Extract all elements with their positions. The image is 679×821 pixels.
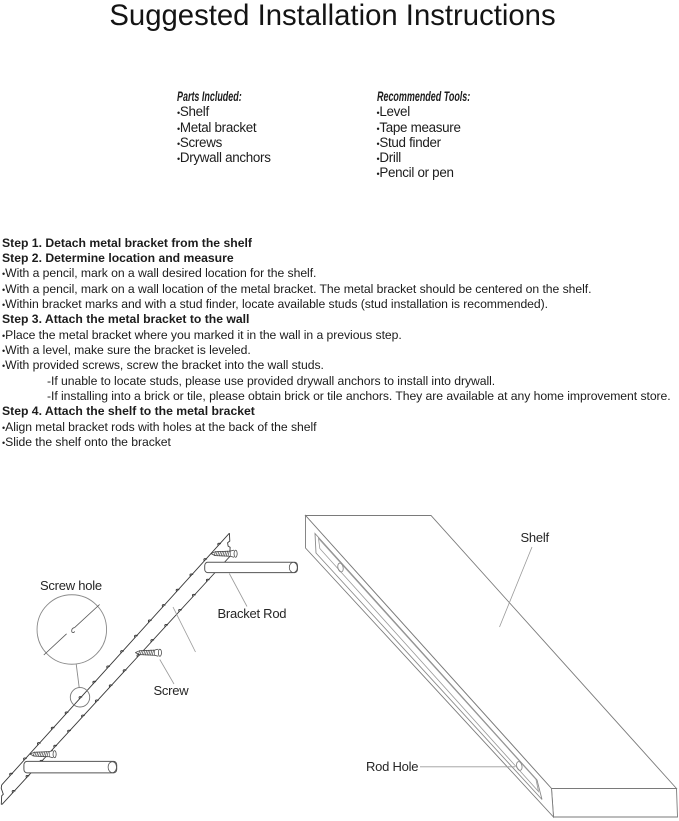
svg-text:Shelf: Shelf [521,530,550,545]
svg-text:Screw hole: Screw hole [40,578,102,593]
svg-text:Rod Hole: Rod Hole [366,759,418,774]
svg-text:Bracket Rod: Bracket Rod [218,606,287,621]
svg-text:Screw: Screw [154,683,190,698]
